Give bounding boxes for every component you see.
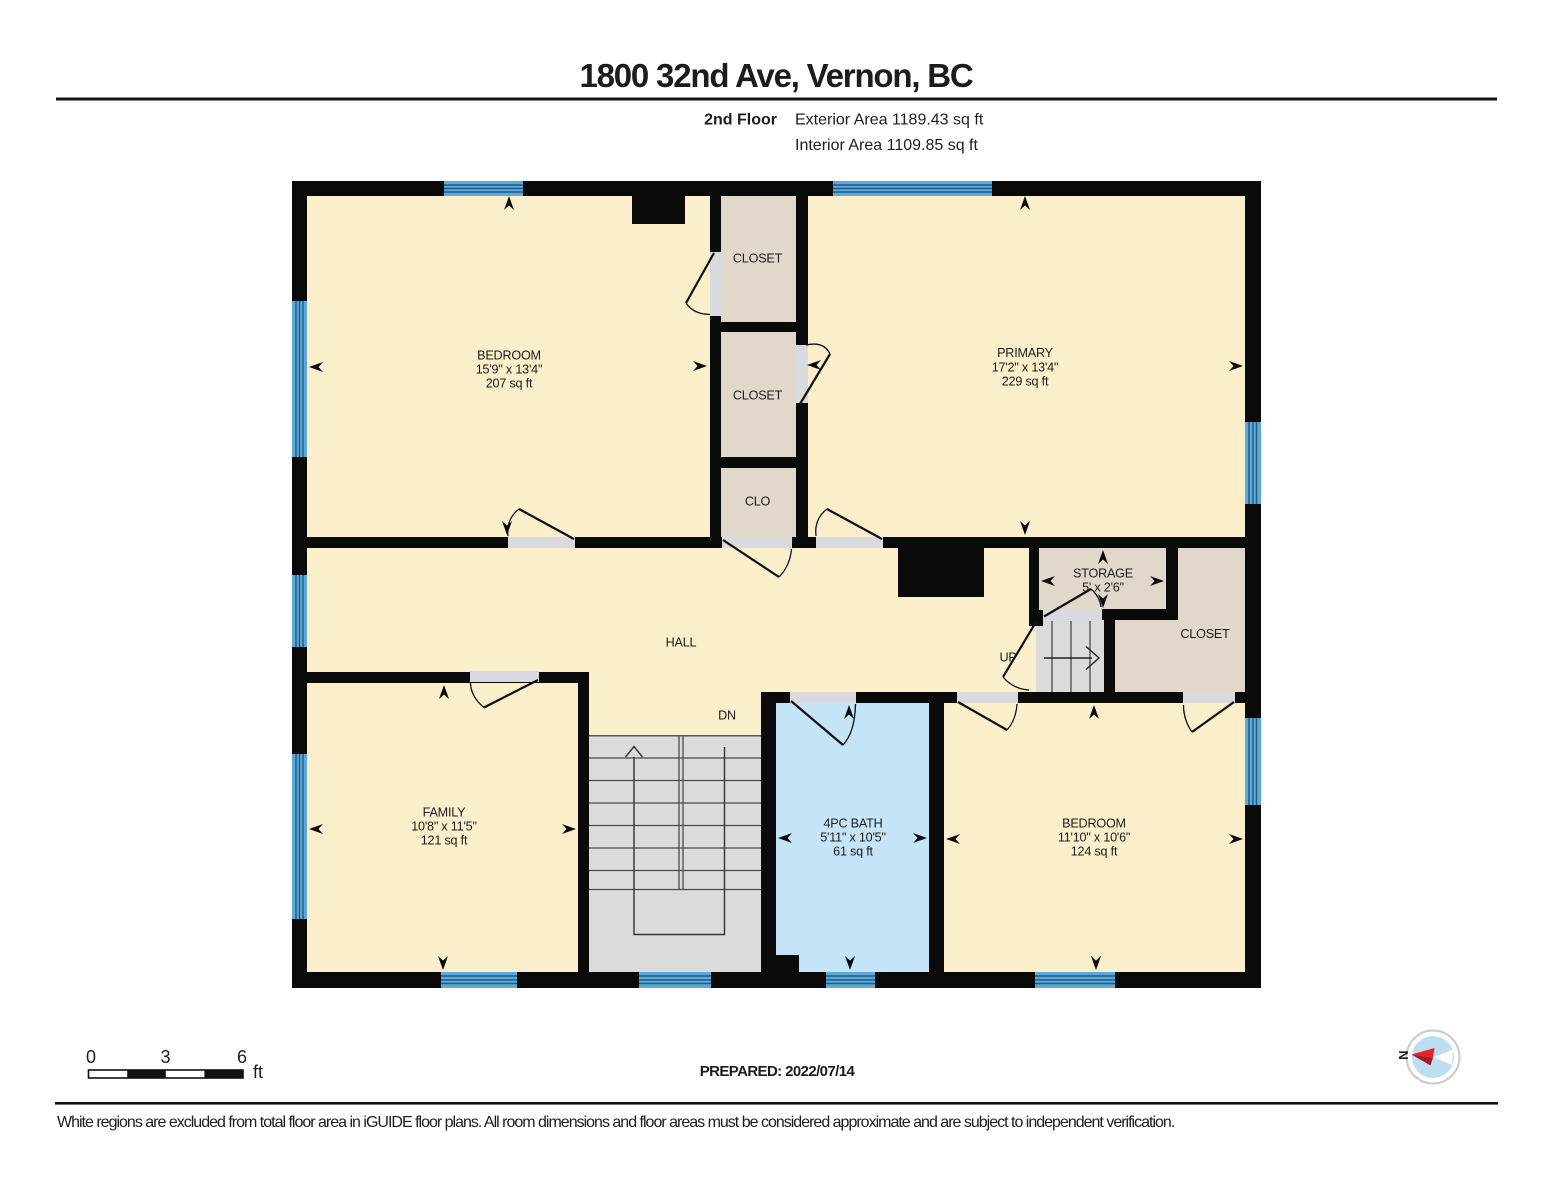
svg-text:PREPARED: 2022/07/14: PREPARED: 2022/07/14: [700, 1063, 856, 1080]
svg-text:PRIMARY: PRIMARY: [997, 346, 1054, 360]
svg-text:121 sq ft: 121 sq ft: [421, 834, 468, 848]
svg-text:CLOSET: CLOSET: [1180, 627, 1230, 641]
svg-text:17'2" x 13'4": 17'2" x 13'4": [992, 361, 1058, 375]
svg-text:CLOSET: CLOSET: [733, 252, 783, 266]
svg-text:ft: ft: [253, 1062, 263, 1082]
svg-text:5'11" x 10'5": 5'11" x 10'5": [820, 831, 886, 845]
svg-text:UP: UP: [999, 651, 1016, 665]
svg-text:124 sq ft: 124 sq ft: [1071, 845, 1118, 859]
svg-text:N: N: [1396, 1051, 1411, 1060]
svg-text:HALL: HALL: [666, 636, 697, 650]
svg-text:207 sq ft: 207 sq ft: [486, 377, 533, 391]
svg-text:229 sq ft: 229 sq ft: [1002, 375, 1049, 389]
svg-text:11'10" x 10'6": 11'10" x 10'6": [1058, 831, 1130, 845]
svg-text:2nd Floor: 2nd Floor: [704, 112, 777, 129]
svg-text:15'9" x 13'4": 15'9" x 13'4": [476, 363, 542, 377]
svg-text:10'8" x 11'5": 10'8" x 11'5": [411, 820, 477, 834]
svg-text:Interior Area 1109.85 sq ft: Interior Area 1109.85 sq ft: [795, 137, 978, 154]
svg-text:61 sq ft: 61 sq ft: [833, 845, 873, 859]
svg-text:White regions are excluded fro: White regions are excluded from total fl…: [57, 1114, 1174, 1131]
svg-text:4PC BATH: 4PC BATH: [823, 817, 882, 831]
svg-text:5' x 2'6": 5' x 2'6": [1082, 581, 1124, 595]
svg-text:1800 32nd Ave, Vernon, BC: 1800 32nd Ave, Vernon, BC: [579, 57, 972, 94]
svg-text:FAMILY: FAMILY: [423, 806, 466, 820]
svg-text:6: 6: [237, 1047, 247, 1067]
svg-text:CLO: CLO: [745, 495, 771, 509]
svg-text:3: 3: [160, 1047, 170, 1067]
svg-text:DN: DN: [718, 709, 736, 723]
svg-text:0: 0: [86, 1047, 96, 1067]
svg-text:CLOSET: CLOSET: [733, 389, 783, 403]
svg-text:STORAGE: STORAGE: [1073, 567, 1133, 581]
svg-text:Exterior Area 1189.43 sq ft: Exterior Area 1189.43 sq ft: [795, 112, 984, 129]
svg-text:BEDROOM: BEDROOM: [1062, 817, 1126, 831]
svg-text:BEDROOM: BEDROOM: [477, 349, 541, 363]
